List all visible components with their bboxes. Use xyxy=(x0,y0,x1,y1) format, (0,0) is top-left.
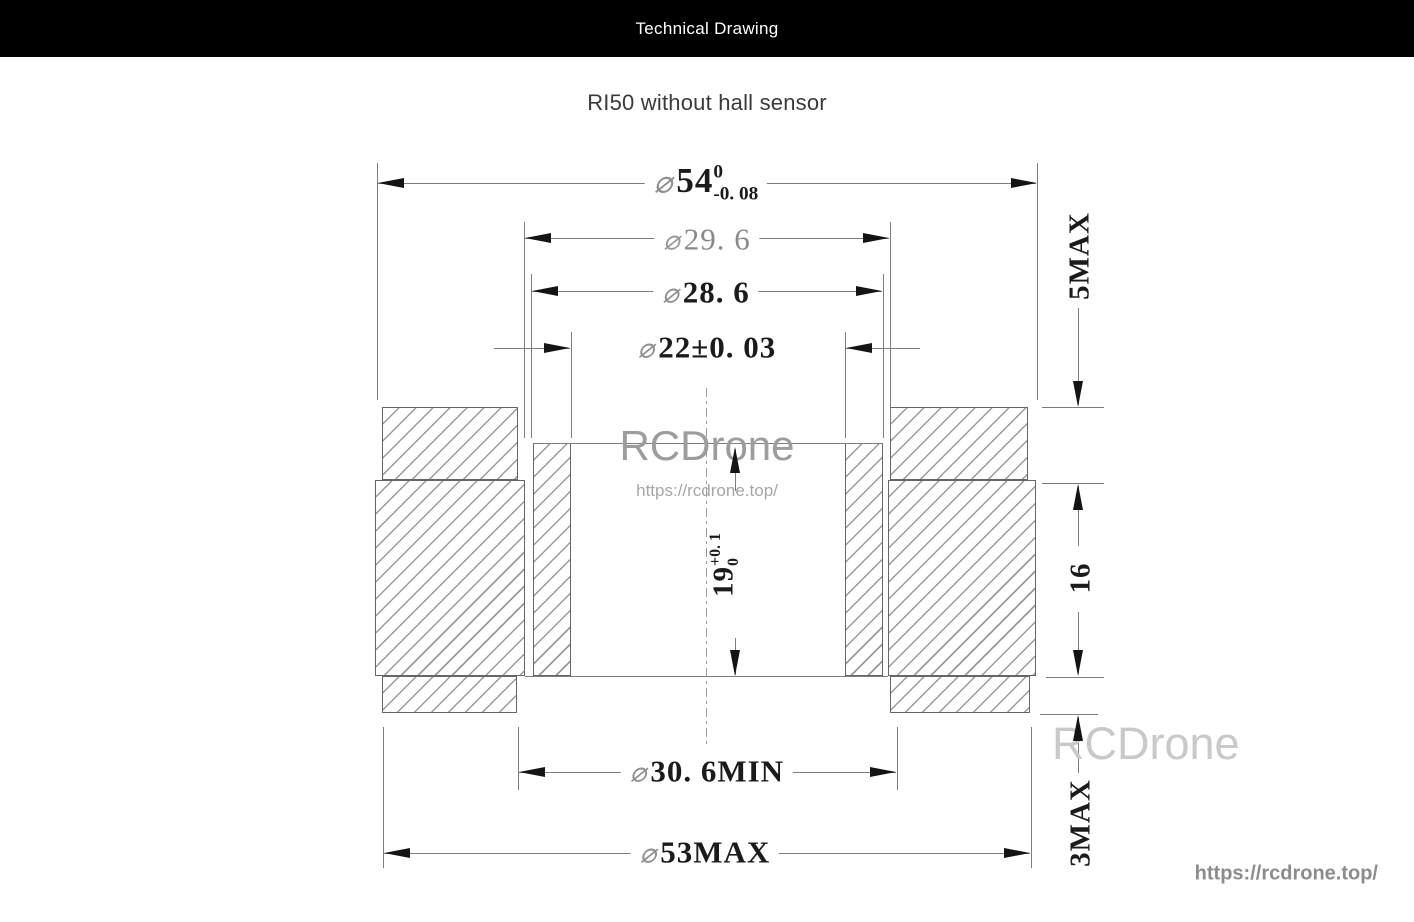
arrow-dia22-left xyxy=(544,343,570,353)
dimension-label-16: 16 xyxy=(1067,563,1096,594)
dimension-value: 53MAX xyxy=(660,834,770,869)
section-left-inner-ring xyxy=(533,443,571,676)
extension-line-dia53-left xyxy=(383,727,384,868)
diameter-symbol: ⌀ xyxy=(654,165,674,199)
reference-tick-3max xyxy=(1040,714,1098,715)
arrow-dia54-left xyxy=(378,178,404,188)
dimension-value: 5MAX xyxy=(1064,212,1096,300)
page-title: Technical Drawing xyxy=(635,19,778,39)
diameter-symbol: ⌀ xyxy=(662,278,679,308)
arrow-5max-down xyxy=(1073,381,1083,407)
header-bar: Technical Drawing xyxy=(0,0,1414,57)
extension-line-dia54-left xyxy=(377,163,378,400)
arrow-16-down xyxy=(1073,650,1083,676)
reference-tick-16-bottom xyxy=(1046,677,1104,678)
arrow-dia28-6-right xyxy=(856,286,882,296)
arrow-dia22-right xyxy=(846,343,872,353)
tolerance-lower: 0 xyxy=(725,558,743,566)
tolerance-stack: +0. 10 xyxy=(707,533,743,566)
dimension-label-dia28-6: ⌀28. 6 xyxy=(653,274,758,309)
dimension-label-3max: 3MAX xyxy=(1067,779,1096,867)
arrow-19-up xyxy=(730,447,740,473)
section-right-bottom-block xyxy=(890,676,1030,713)
section-right-inner-ring xyxy=(845,443,883,676)
technical-drawing-page: Technical Drawing RI50 without hall sens… xyxy=(0,0,1414,922)
dimension-value: 22±0. 03 xyxy=(658,329,776,364)
extension-line-dia28-6-right xyxy=(883,274,884,438)
dimension-label-dia30-6: ⌀30. 6MIN xyxy=(621,753,793,788)
extension-line-dia30-6-right xyxy=(897,727,898,790)
tolerance-lower: -0. 08 xyxy=(713,183,758,205)
extension-line-dia30-6-left xyxy=(518,727,519,790)
dimension-label-5max: 5MAX xyxy=(1066,212,1095,300)
extension-line-dia28-6-left xyxy=(531,274,532,438)
watermark-url-center: https://rcdrone.top/ xyxy=(636,481,778,501)
reference-tick-5max xyxy=(1042,407,1104,408)
dimension-value: 29. 6 xyxy=(684,221,751,256)
diameter-symbol: ⌀ xyxy=(640,838,657,868)
dimension-label-19: 19+0. 10 xyxy=(708,533,744,597)
dimension-value: 16 xyxy=(1065,563,1097,594)
dimension-label-dia29-6: ⌀29. 6 xyxy=(654,221,759,256)
diameter-symbol: ⌀ xyxy=(663,225,680,255)
section-left-top-block xyxy=(382,407,518,480)
arrow-3max-up xyxy=(1073,715,1083,741)
extension-line-dia22-left xyxy=(571,332,572,438)
arrow-dia54-right xyxy=(1011,178,1037,188)
arrow-dia30-6-left xyxy=(519,767,545,777)
dimension-label-dia22: ⌀22±0. 03 xyxy=(629,329,785,364)
arrow-16-up xyxy=(1073,484,1083,510)
dimension-label-dia53: ⌀53MAX xyxy=(631,834,779,869)
watermark-brand-center: RCDrone xyxy=(619,422,794,470)
drawing-subtitle: RI50 without hall sensor xyxy=(0,90,1414,116)
arrow-19-down xyxy=(730,650,740,676)
diameter-symbol: ⌀ xyxy=(638,333,655,363)
dimension-label-dia54: ⌀540-0. 08 xyxy=(645,160,767,207)
diameter-symbol: ⌀ xyxy=(630,757,647,787)
tolerance-upper: 0 xyxy=(713,161,723,183)
dimension-value: 30. 6MIN xyxy=(650,753,784,788)
dimension-value: 19 xyxy=(708,566,740,597)
arrow-dia28-6-left xyxy=(532,286,558,296)
tolerance-upper: +0. 1 xyxy=(707,533,725,566)
arrow-dia53-left xyxy=(384,848,410,858)
extension-line-dia29-6-right xyxy=(890,222,891,438)
arrow-dia29-6-left xyxy=(525,233,551,243)
section-right-main-block xyxy=(888,480,1036,676)
section-right-top-block xyxy=(890,407,1028,480)
arrow-dia29-6-right xyxy=(863,233,889,243)
section-left-main-block xyxy=(375,480,525,676)
extension-line-dia29-6-left xyxy=(524,222,525,438)
dimension-value: 28. 6 xyxy=(683,274,750,309)
extension-line-dia54-right xyxy=(1037,163,1038,400)
dimension-value: 3MAX xyxy=(1065,779,1097,867)
arrow-dia30-6-right xyxy=(870,767,896,777)
dimension-value: 54 xyxy=(676,161,713,200)
extension-line-dia53-right xyxy=(1031,727,1032,868)
watermark-url-corner: https://rcdrone.top/ xyxy=(1195,863,1378,886)
tolerance-stack: 0-0. 08 xyxy=(713,161,758,204)
section-left-bottom-block xyxy=(382,676,517,713)
arrow-dia53-right xyxy=(1004,848,1030,858)
